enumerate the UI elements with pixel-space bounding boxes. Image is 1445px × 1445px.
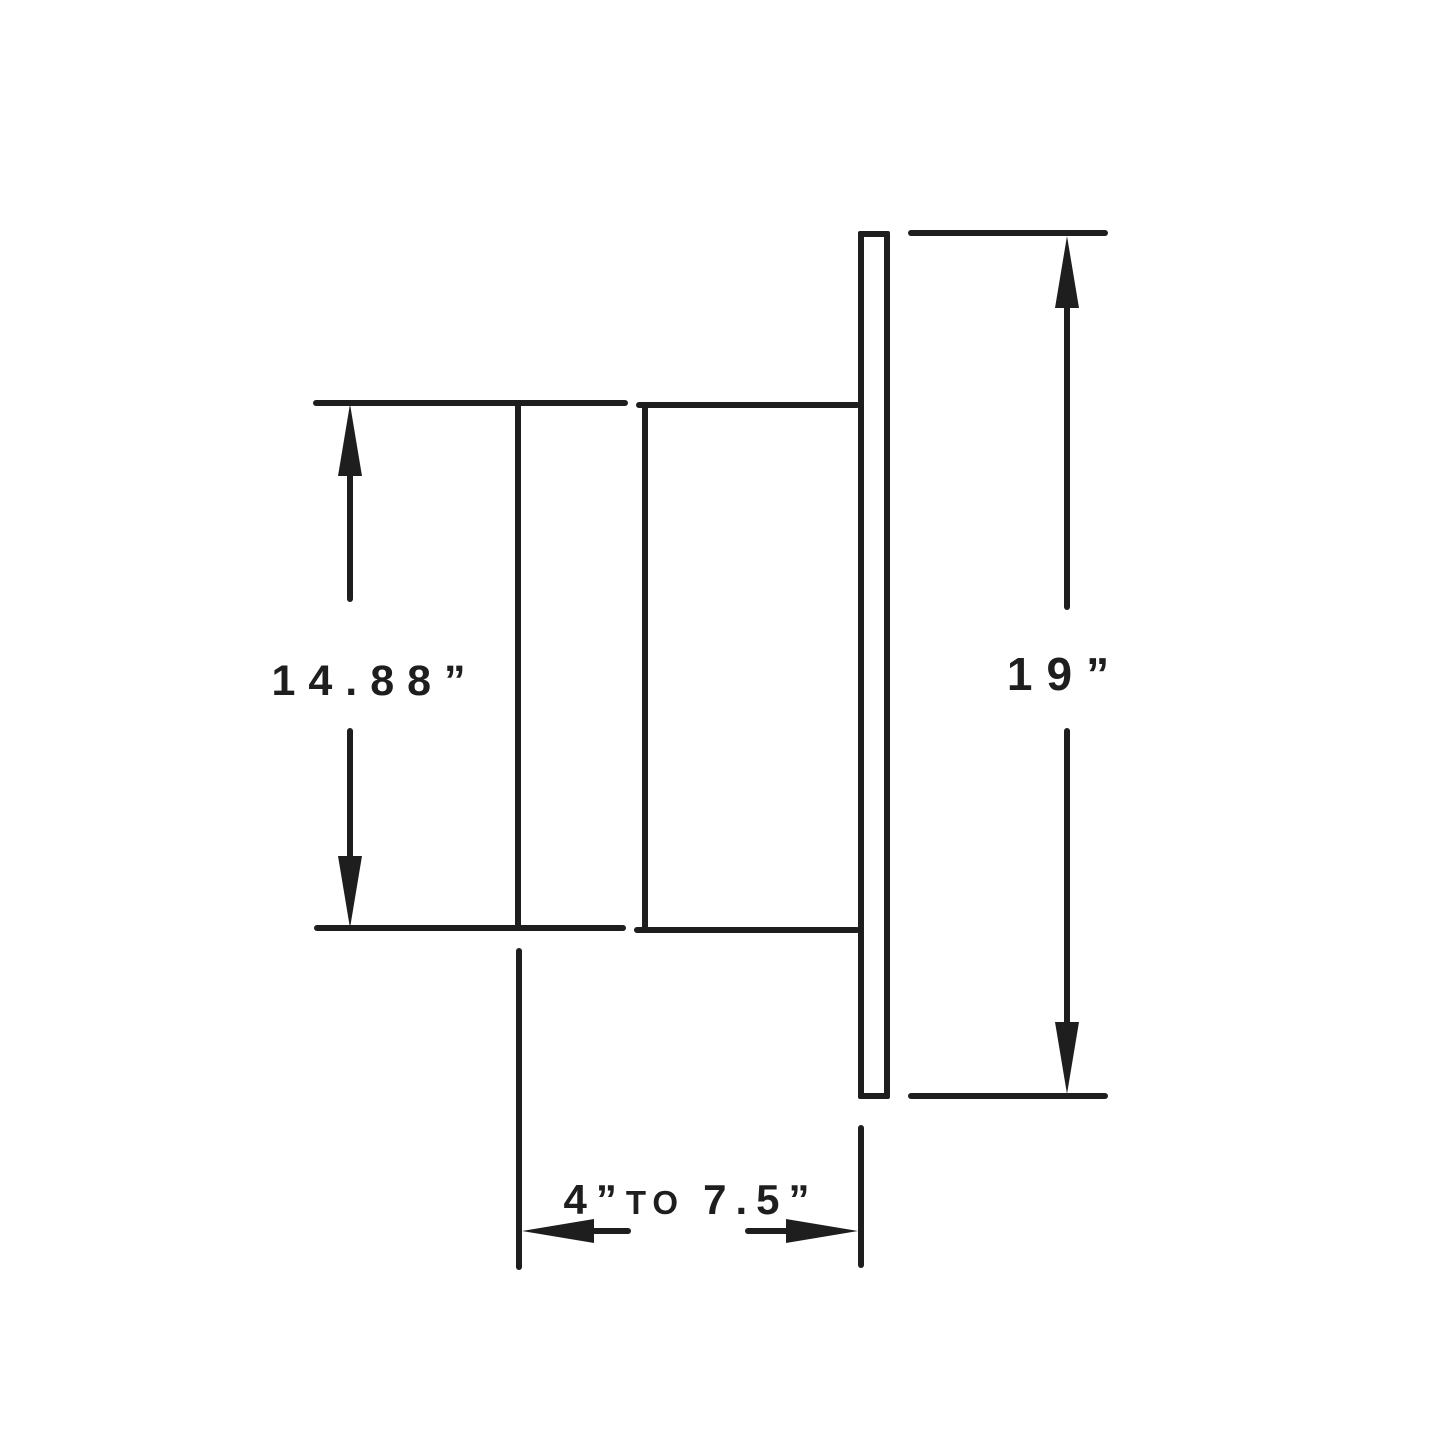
left-arrowhead xyxy=(522,1219,594,1243)
depth-connector: TO xyxy=(626,1184,685,1221)
down-arrowhead xyxy=(1055,1022,1079,1094)
flange-dim-upper-shaft xyxy=(1064,300,1070,610)
depth-max-value: 7.5” xyxy=(703,1176,818,1223)
body-left-edge xyxy=(515,403,521,931)
down-arrowhead xyxy=(338,856,362,928)
body-dim-upper-shaft xyxy=(347,468,353,602)
depth-left-arrow-shaft xyxy=(590,1228,631,1234)
depth-min-value: 4” xyxy=(564,1176,626,1223)
mounting-flange-outline xyxy=(858,231,890,1099)
depth-right-arrow-shaft xyxy=(745,1228,790,1234)
technical-drawing-canvas: 19” 14.88” 4”TO7.5” xyxy=(0,0,1445,1445)
right-arrowhead xyxy=(786,1219,858,1243)
body-bottom-edge-right-segment xyxy=(634,927,860,933)
body-height-label: 14.88” xyxy=(250,657,500,705)
flange-height-label: 19” xyxy=(985,648,1145,700)
body-top-edge-right-segment xyxy=(636,402,860,408)
up-arrowhead xyxy=(338,404,362,476)
body-telescoping-seam xyxy=(642,403,648,931)
up-arrowhead xyxy=(1055,236,1079,308)
flange-dim-lower-shaft xyxy=(1064,728,1070,1028)
body-dim-lower-shaft xyxy=(347,728,353,860)
